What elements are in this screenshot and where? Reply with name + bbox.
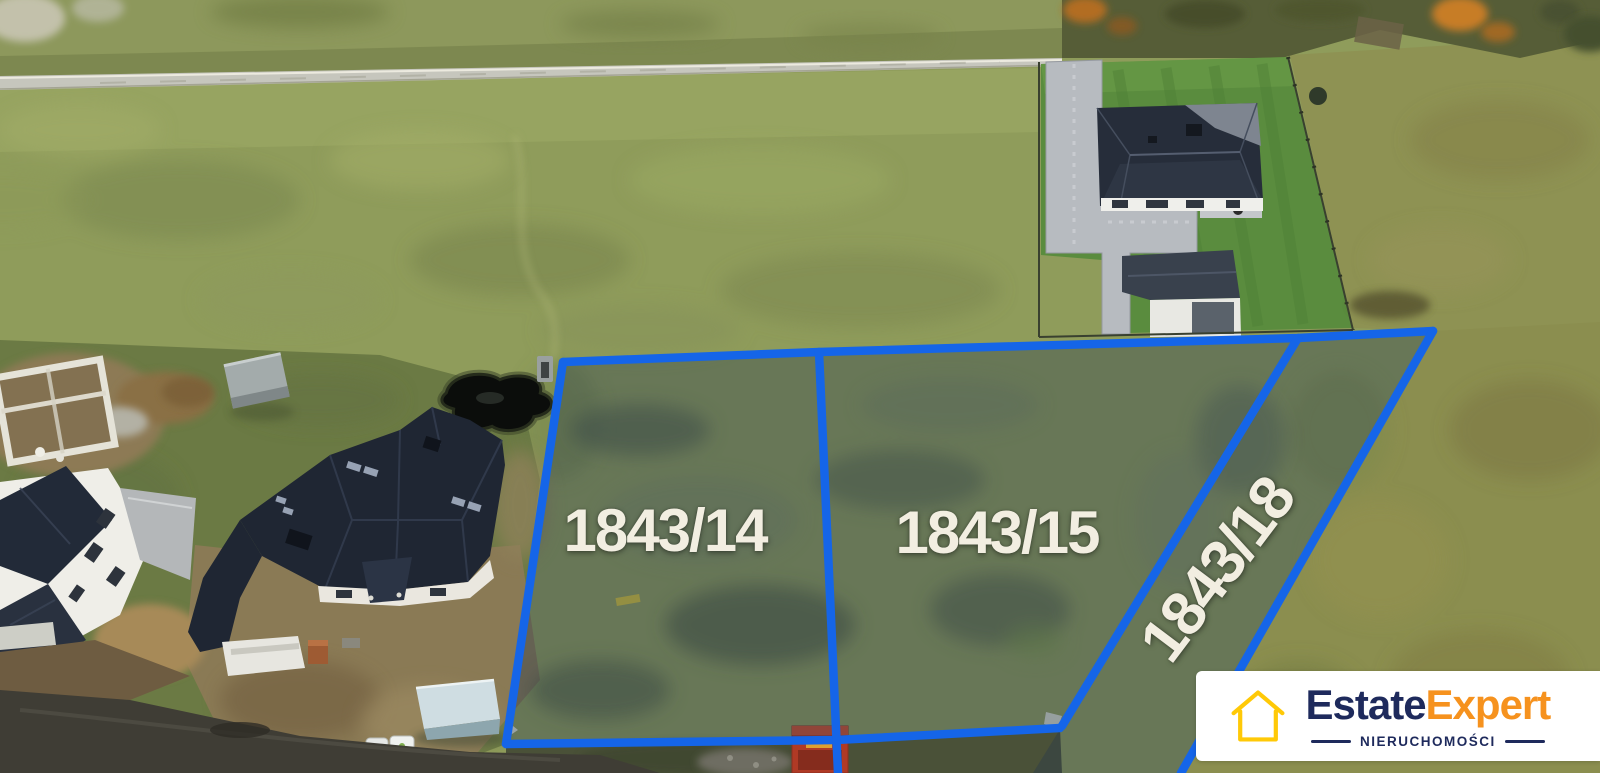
plot-label-1843-15: 1843/15 [896, 503, 1099, 563]
aerial-listing-photo: 1843/14 1843/15 1843/18 EstateExpert NIE… [0, 0, 1600, 773]
tagline-text: NIERUCHOMOŚCI [1360, 734, 1496, 749]
logo-text-expert: Expert [1426, 681, 1551, 728]
terrain-graphic [0, 0, 1600, 773]
tagline-dash-right [1505, 740, 1545, 743]
estate-expert-logo: EstateExpert NIERUCHOMOŚCI [1196, 671, 1600, 761]
house-icon [1228, 687, 1288, 745]
logo-wordmark: EstateExpert [1305, 684, 1550, 726]
logo-tagline: NIERUCHOMOŚCI [1302, 734, 1554, 749]
utility-post [537, 356, 553, 382]
tagline-dash-left [1311, 740, 1351, 743]
logo-text-block: EstateExpert NIERUCHOMOŚCI [1302, 684, 1554, 749]
plot-label-1843-14: 1843/14 [564, 501, 767, 561]
logo-text-estate: Estate [1305, 681, 1425, 728]
